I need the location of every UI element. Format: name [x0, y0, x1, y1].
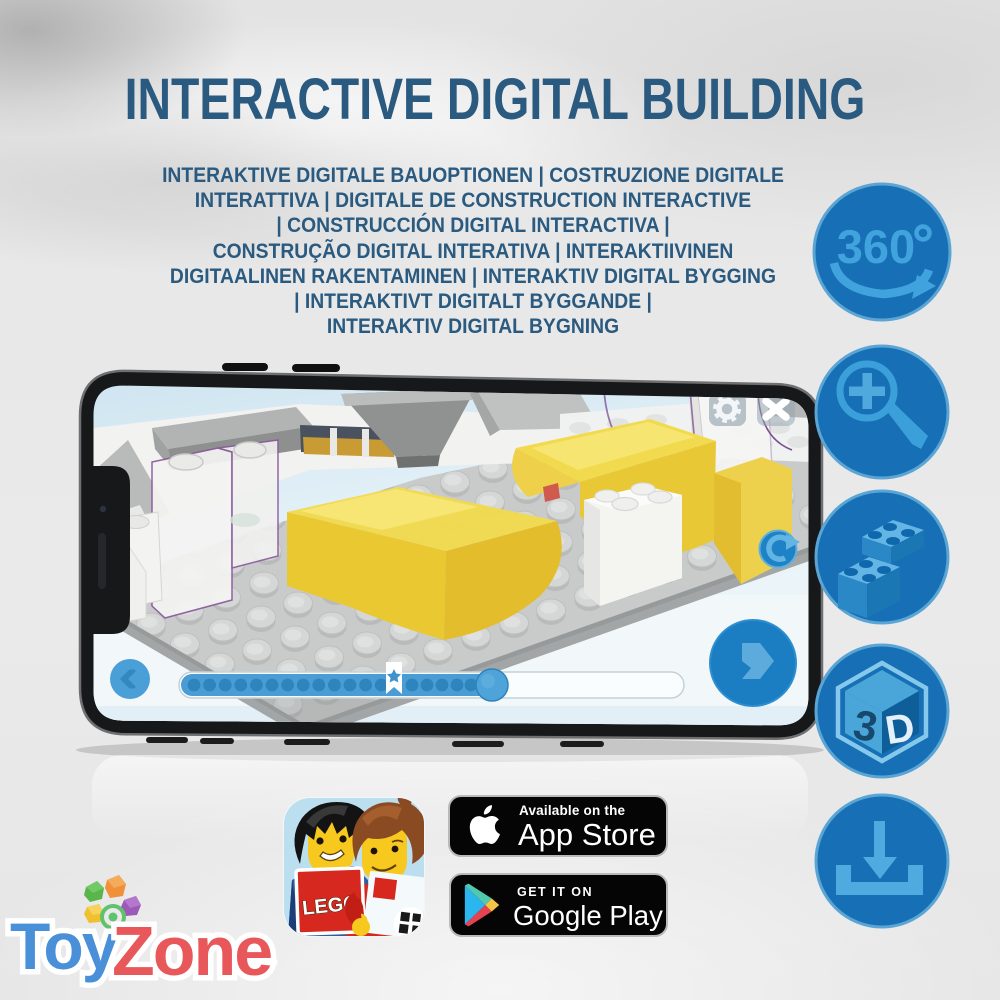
- svg-text:Toy: Toy: [10, 909, 119, 983]
- svg-text:Zone: Zone: [112, 912, 271, 990]
- svg-text:360: 360: [837, 220, 915, 273]
